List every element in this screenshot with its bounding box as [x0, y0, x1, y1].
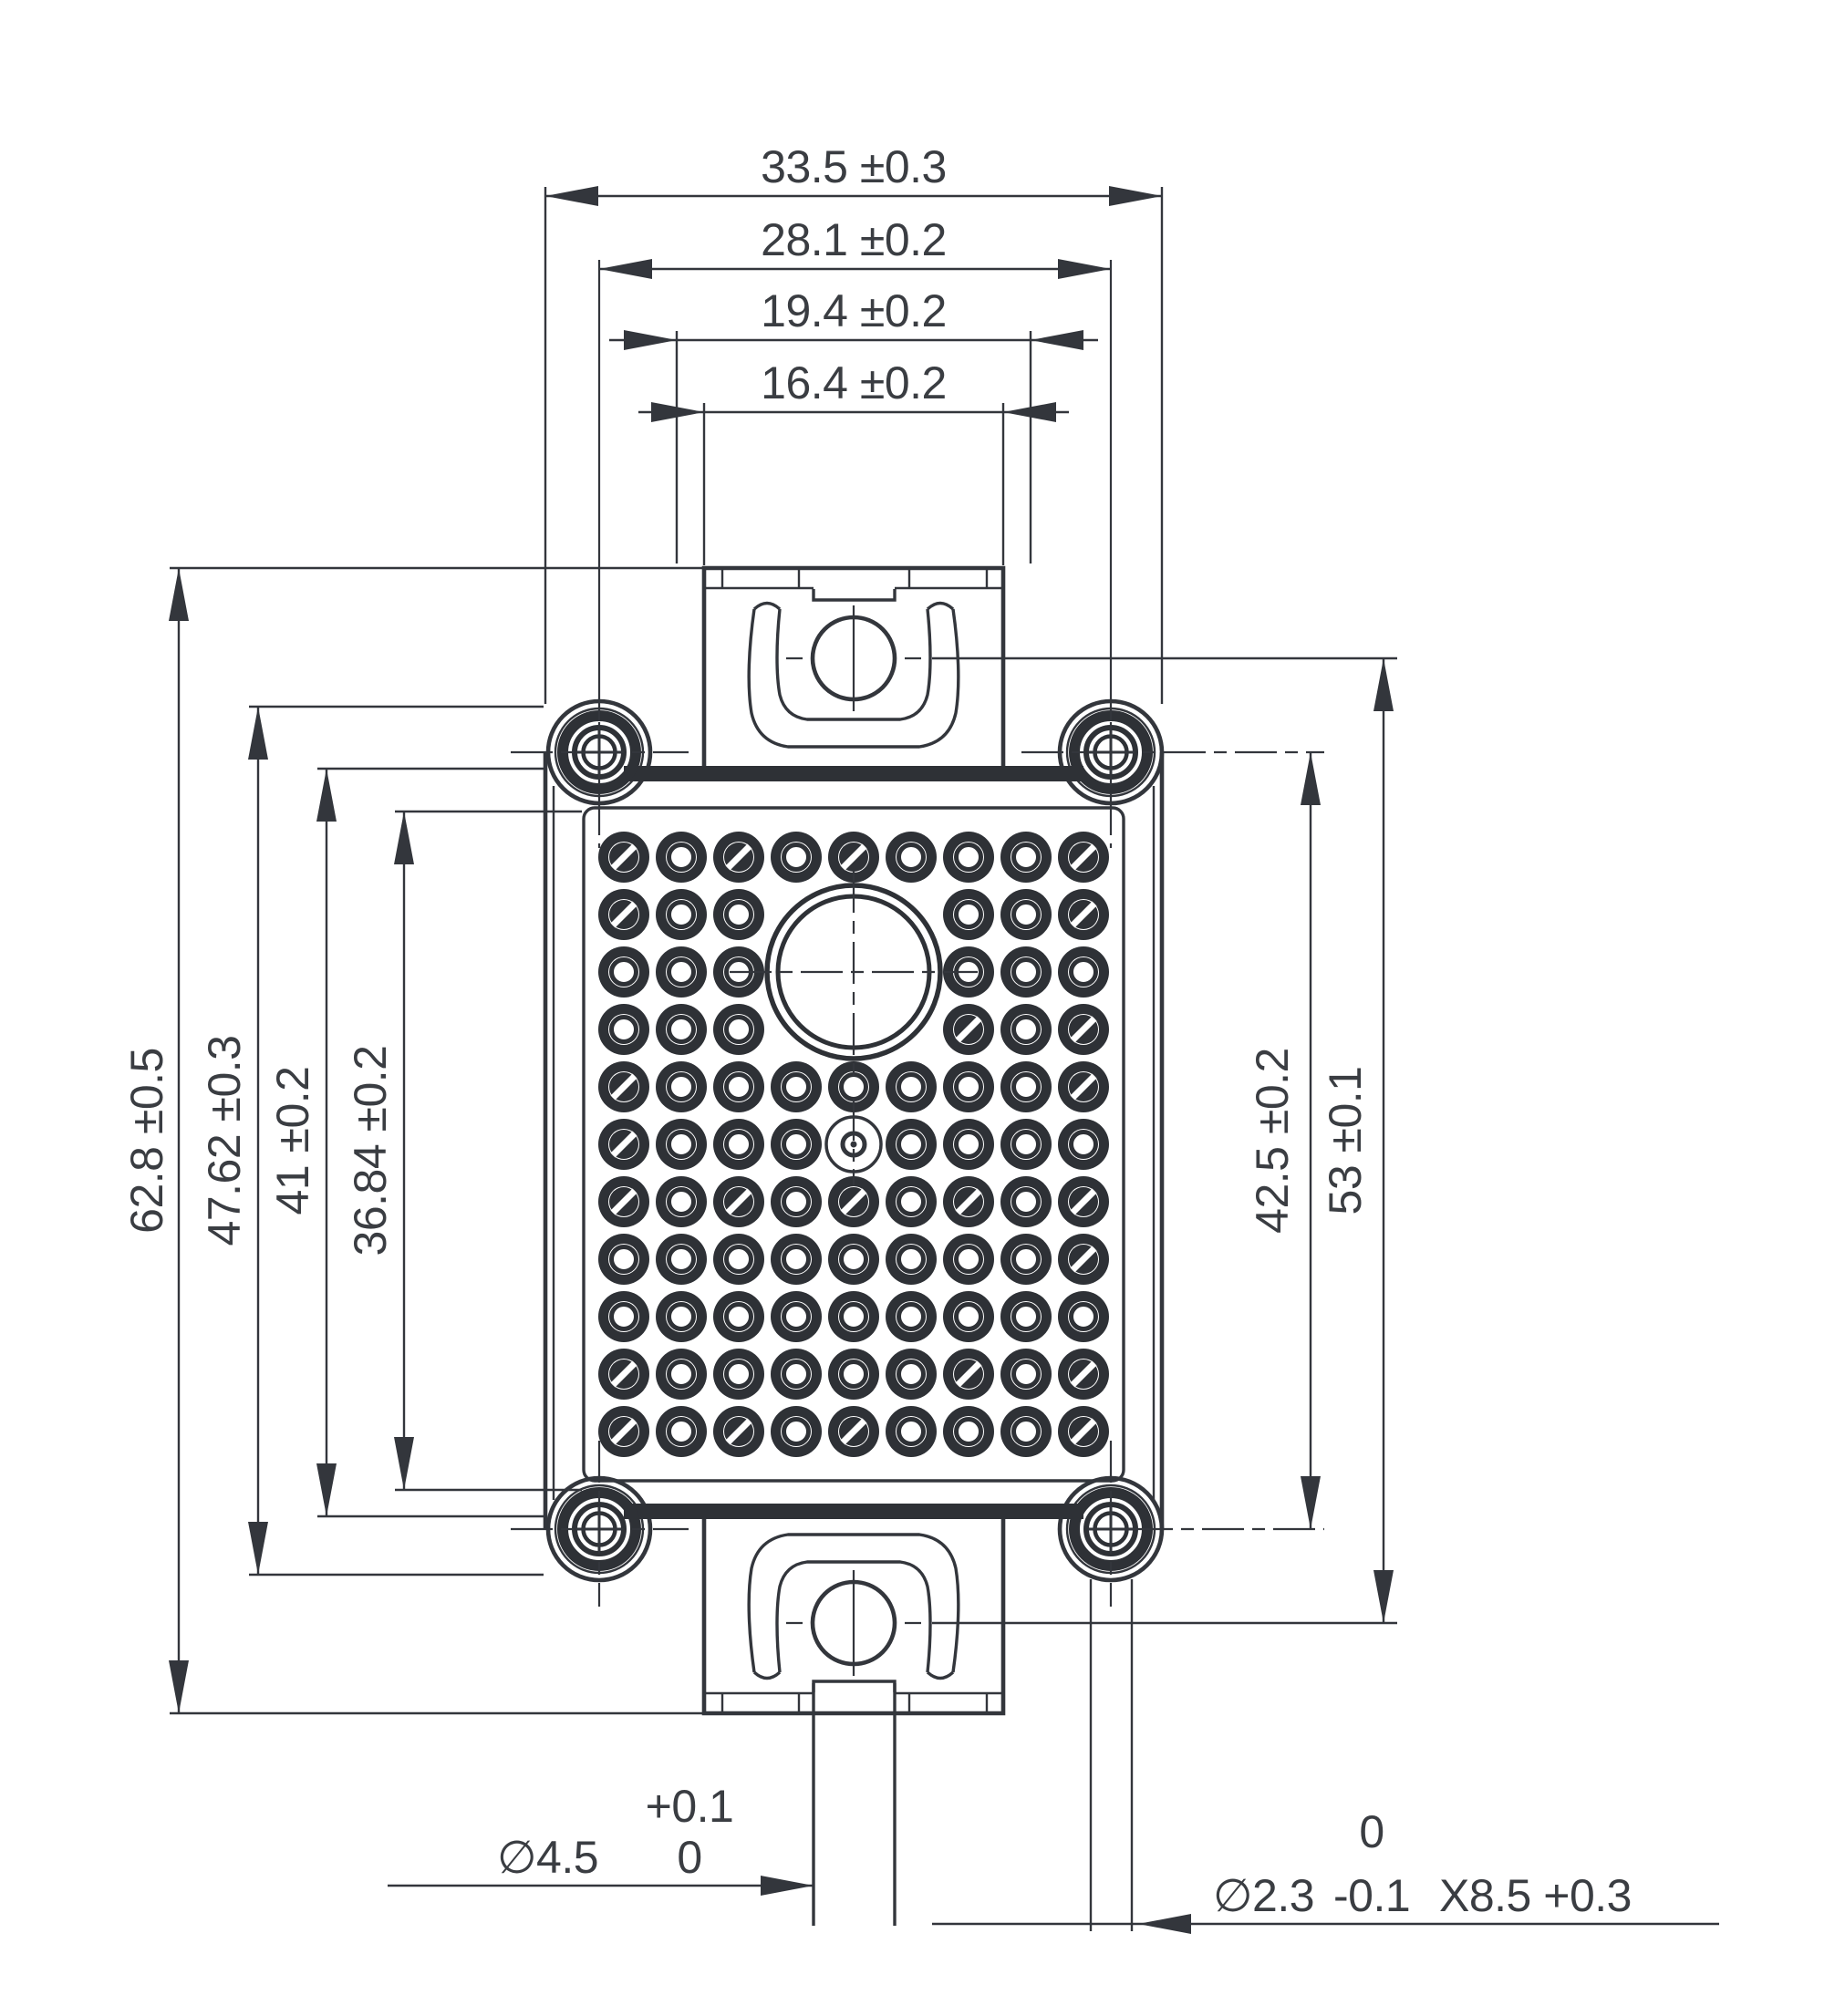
- pin-r7-c4: [771, 1176, 822, 1227]
- pin-r9-c7: [943, 1291, 994, 1342]
- pin-r1-c7: [943, 832, 994, 883]
- dim-tol-upper: 0: [1359, 1806, 1384, 1857]
- pin-r4-c1: [598, 1004, 649, 1055]
- extension-line: [1091, 1579, 1132, 1931]
- pin-r11-c2: [656, 1406, 707, 1457]
- dimension-28-1: 28.1 ±0.2: [599, 214, 1111, 279]
- terminal-stem: [814, 1683, 895, 1926]
- pin-r5-c7: [943, 1061, 994, 1112]
- pin-r7-c8: [1000, 1176, 1052, 1227]
- dimension-41: 41 ±0.2: [267, 769, 544, 1516]
- pin-r1-c9: [1058, 832, 1109, 883]
- pin-r1-c4: [771, 832, 822, 883]
- body-top-band: [624, 766, 1083, 781]
- pin-r9-c6: [886, 1291, 937, 1342]
- dim-label: 41 ±0.2: [267, 1067, 318, 1215]
- pin-r11-c1: [598, 1406, 649, 1457]
- dim-tol-upper: +0.1: [646, 1781, 734, 1832]
- pin-r7-c3: [713, 1176, 764, 1227]
- pin-r10-c4: [771, 1349, 822, 1400]
- dimension-19-4: 19.4 ±0.2: [609, 285, 1098, 563]
- pin-r6-c4: [771, 1119, 822, 1170]
- pin-r1-c2: [656, 832, 707, 883]
- pin-r5-c6: [886, 1061, 937, 1112]
- pin-r11-c8: [1000, 1406, 1052, 1457]
- pin-r11-c9: [1058, 1406, 1109, 1457]
- pin-r6-c7: [943, 1119, 994, 1170]
- tab-notch: [814, 1681, 895, 1692]
- pin-r1-c6: [886, 832, 937, 883]
- pin-r5-c8: [1000, 1061, 1052, 1112]
- pin-r5-c4: [771, 1061, 822, 1112]
- bottom-mounting-tab: [704, 1508, 1003, 1926]
- dimension-pin-diameter: ∅2.3 -0.1 0 X8.5 +0.3: [932, 1579, 1719, 1934]
- pin-r10-c8: [1000, 1349, 1052, 1400]
- pin-r2-c8: [1000, 889, 1052, 940]
- pin-r11-c7: [943, 1406, 994, 1457]
- pin-r8-c9: [1058, 1234, 1109, 1285]
- pin-r8-c8: [1000, 1234, 1052, 1285]
- pin-r7-c6: [886, 1176, 937, 1227]
- pin-r10-c3: [713, 1349, 764, 1400]
- pin-r7-c7: [943, 1176, 994, 1227]
- pin-r6-c3: [713, 1119, 764, 1170]
- pin-r4-c8: [1000, 1004, 1052, 1055]
- pin-r8-c4: [771, 1234, 822, 1285]
- pin-r3-c9: [1058, 946, 1109, 998]
- pin-r11-c4: [771, 1406, 822, 1457]
- pin-r8-c2: [656, 1234, 707, 1285]
- pin-r9-c5: [828, 1291, 879, 1342]
- pin-r9-c4: [771, 1291, 822, 1342]
- pin-r10-c6: [886, 1349, 937, 1400]
- pin-r2-c9: [1058, 889, 1109, 940]
- dim-label: 28.1 ±0.2: [761, 214, 947, 265]
- pin-r8-c3: [713, 1234, 764, 1285]
- arrowhead: [761, 1876, 814, 1896]
- pin-r8-c6: [886, 1234, 937, 1285]
- pin-r9-c2: [656, 1291, 707, 1342]
- pin-r5-c2: [656, 1061, 707, 1112]
- dim-label: 47.62 ±0.3: [199, 1036, 250, 1246]
- pin-r7-c2: [656, 1176, 707, 1227]
- pin-r3-c1: [598, 946, 649, 998]
- dimension-42-5: 42.5 ±0.2: [1247, 752, 1321, 1529]
- pin-r2-c7: [943, 889, 994, 940]
- pin-r4-c3: [713, 1004, 764, 1055]
- pin-r8-c5: [828, 1234, 879, 1285]
- pin-r5-c3: [713, 1061, 764, 1112]
- pin-r10-c9: [1058, 1349, 1109, 1400]
- pin-r3-c8: [1000, 946, 1052, 998]
- dim-label: 42.5 ±0.2: [1247, 1048, 1298, 1234]
- pin-r7-c1: [598, 1176, 649, 1227]
- dimension-stem-diameter: ∅4.5 +0.1 0: [388, 1781, 814, 1896]
- pin-r11-c6: [886, 1406, 937, 1457]
- pin-r9-c3: [713, 1291, 764, 1342]
- dim-tol-lower: 0: [677, 1832, 701, 1883]
- arrowhead: [1138, 1914, 1191, 1934]
- dim-label: 19.4 ±0.2: [761, 285, 947, 336]
- pin-r5-c1: [598, 1061, 649, 1112]
- pin-r11-c5: [828, 1406, 879, 1457]
- center-hole: [730, 871, 978, 1185]
- pin-r9-c9: [1058, 1291, 1109, 1342]
- dim-label: 53 ±0.1: [1320, 1067, 1371, 1215]
- pin-r2-c2: [656, 889, 707, 940]
- pin-r10-c5: [828, 1349, 879, 1400]
- dim-value: ∅4.5: [497, 1832, 598, 1883]
- dim-label: 16.4 ±0.2: [761, 357, 947, 408]
- dim-label: 62.8 ±0.5: [121, 1048, 172, 1234]
- pin-r1-c1: [598, 832, 649, 883]
- pin-r6-c8: [1000, 1119, 1052, 1170]
- pin-r7-c9: [1058, 1176, 1109, 1227]
- extension-line: [704, 403, 1003, 565]
- pin-r11-c3: [713, 1406, 764, 1457]
- pin-r10-c2: [656, 1349, 707, 1400]
- pin-r3-c2: [656, 946, 707, 998]
- tab-notch: [814, 589, 895, 600]
- pin-r6-c6: [886, 1119, 937, 1170]
- dim-value: ∅2.3: [1213, 1870, 1314, 1921]
- drawing-page: 33.5 ±0.3 28.1 ±0.2 19.4 ±0.2 16.4 ±0.2 …: [0, 0, 1845, 2016]
- pin-r2-c3: [713, 889, 764, 940]
- pin-r9-c1: [598, 1291, 649, 1342]
- pin-r1-c3: [713, 832, 764, 883]
- dimension-16-4: 16.4 ±0.2: [638, 357, 1069, 565]
- pin-r4-c9: [1058, 1004, 1109, 1055]
- pin-r9-c8: [1000, 1291, 1052, 1342]
- pin-r10-c7: [943, 1349, 994, 1400]
- pin-r1-c8: [1000, 832, 1052, 883]
- body-bottom-band: [624, 1504, 1083, 1519]
- pin-r2-c1: [598, 889, 649, 940]
- pin-r8-c7: [943, 1234, 994, 1285]
- pin-r6-c2: [656, 1119, 707, 1170]
- engineering-drawing: 33.5 ±0.3 28.1 ±0.2 19.4 ±0.2 16.4 ±0.2 …: [0, 0, 1845, 2016]
- pin-r6-c1: [598, 1119, 649, 1170]
- pin-r5-c9: [1058, 1061, 1109, 1112]
- dim-tol-lower: -0.1: [1333, 1870, 1410, 1921]
- pin-r10-c1: [598, 1349, 649, 1400]
- dim-label: 33.5 ±0.3: [761, 141, 947, 192]
- pin-r4-c2: [656, 1004, 707, 1055]
- dim-label: 36.84 ±0.2: [345, 1046, 396, 1256]
- pin-r6-c9: [1058, 1119, 1109, 1170]
- pin-r4-c7: [943, 1004, 994, 1055]
- pin-r8-c1: [598, 1234, 649, 1285]
- dim-suffix: X8.5 +0.3: [1439, 1870, 1632, 1921]
- top-mounting-tab: [704, 568, 1003, 773]
